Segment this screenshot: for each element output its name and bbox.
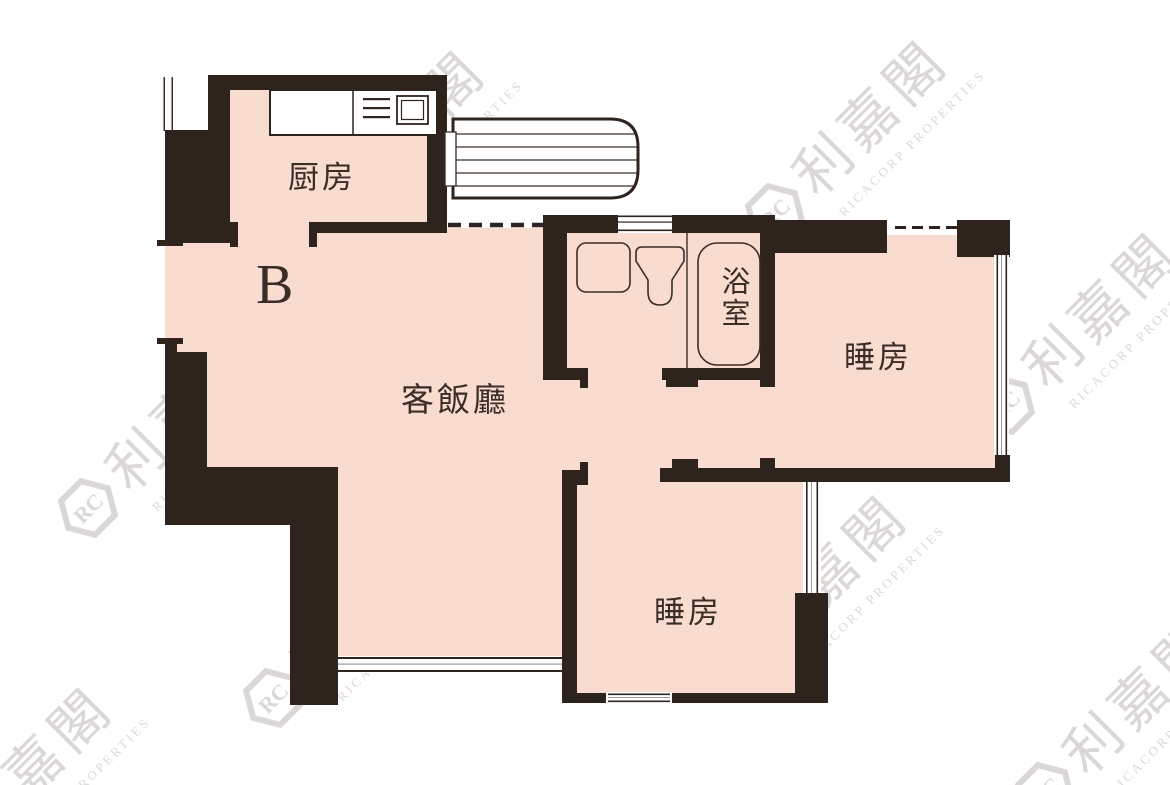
bathroom-door-opening xyxy=(588,368,662,380)
floor-plan-svg: RC 利嘉閣 RICACORP PROPERTIES xyxy=(0,0,1170,785)
floor-plan-page: RC 利嘉閣 RICACORP PROPERTIES xyxy=(0,0,1170,785)
living-floor-lower xyxy=(338,467,562,662)
hall-floor xyxy=(543,378,775,470)
bedroom1-right-window xyxy=(994,255,1009,455)
entrance-door-jamb xyxy=(157,338,183,344)
bedroom1-top-window xyxy=(887,220,957,235)
bathroom-door-post xyxy=(666,378,698,387)
bedroom1-door-jamb xyxy=(760,458,775,470)
kitchen-fixtures xyxy=(270,90,437,135)
bedroom2-floor xyxy=(577,482,807,693)
balcony xyxy=(445,119,638,198)
living-dining-label: 客飯廳 xyxy=(401,382,509,419)
bedroom2-right-window xyxy=(803,482,821,593)
bathroom-door-jamb xyxy=(580,368,588,388)
kitchen-balcony-window xyxy=(445,132,456,186)
unit-label: B xyxy=(256,254,296,316)
bedroom1-label: 睡房 xyxy=(844,340,912,375)
bathroom-top-window xyxy=(618,214,672,233)
bedroom2-label: 睡房 xyxy=(654,595,722,630)
bathroom-label: 浴室 xyxy=(717,266,750,330)
entrance-door-jamb xyxy=(157,240,183,246)
bedroom2-bottom-window xyxy=(606,692,672,704)
bedroom2-door-post xyxy=(672,459,698,470)
sink-icon xyxy=(397,96,428,124)
kitchen-door-opening xyxy=(238,222,309,230)
kitchen-door-jamb xyxy=(230,222,238,247)
bedroom2-door-opening xyxy=(588,468,660,485)
living-bottom-window xyxy=(338,656,562,673)
living-floor-upper xyxy=(165,228,545,467)
kitchen-label: 厨房 xyxy=(288,160,356,195)
